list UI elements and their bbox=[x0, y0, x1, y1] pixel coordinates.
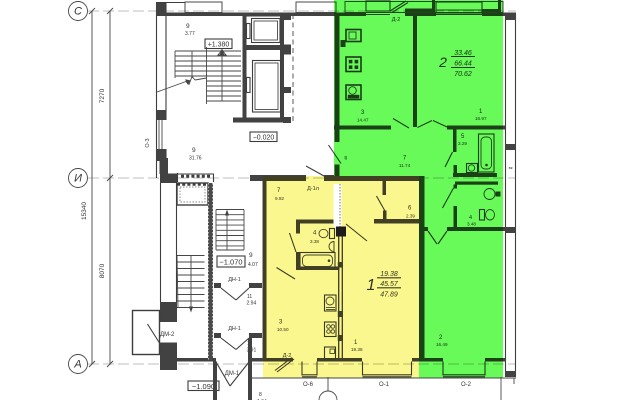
svg-text:9: 9 bbox=[186, 23, 190, 30]
svg-text:+1.380: +1.380 bbox=[208, 42, 230, 49]
svg-text:3.77: 3.77 bbox=[185, 31, 195, 37]
svg-text:ДН-1: ДН-1 bbox=[228, 326, 241, 332]
svg-text:−1.070: −1.070 bbox=[219, 258, 242, 267]
svg-text:ДН-1: ДН-1 bbox=[228, 277, 241, 283]
svg-text:31.76: 31.76 bbox=[189, 156, 202, 162]
svg-text:8070: 8070 bbox=[99, 263, 106, 278]
svg-text:О-2: О-2 bbox=[461, 382, 472, 388]
svg-text:О-1: О-1 bbox=[379, 382, 390, 388]
svg-text:−1.090: −1.090 bbox=[192, 382, 215, 391]
svg-text:−0.020: −0.020 bbox=[253, 135, 275, 142]
svg-text:И: И bbox=[74, 173, 82, 185]
svg-text:9: 9 bbox=[249, 252, 253, 259]
svg-text:4.07: 4.07 bbox=[248, 262, 258, 268]
svg-text:9: 9 bbox=[192, 147, 196, 154]
svg-text:О-6: О-6 bbox=[303, 382, 314, 388]
svg-text:2.94: 2.94 bbox=[247, 301, 257, 307]
svg-text:вк: вк bbox=[509, 165, 513, 170]
svg-text:А: А bbox=[73, 359, 81, 371]
svg-text:О-3: О-3 bbox=[145, 138, 151, 147]
svg-text:8: 8 bbox=[259, 392, 262, 398]
svg-text:7270: 7270 bbox=[99, 88, 106, 103]
svg-text:15340: 15340 bbox=[81, 202, 88, 220]
svg-text:11: 11 bbox=[247, 294, 252, 300]
svg-text:ДМ-2: ДМ-2 bbox=[160, 332, 175, 338]
svg-text:С: С bbox=[74, 6, 82, 18]
